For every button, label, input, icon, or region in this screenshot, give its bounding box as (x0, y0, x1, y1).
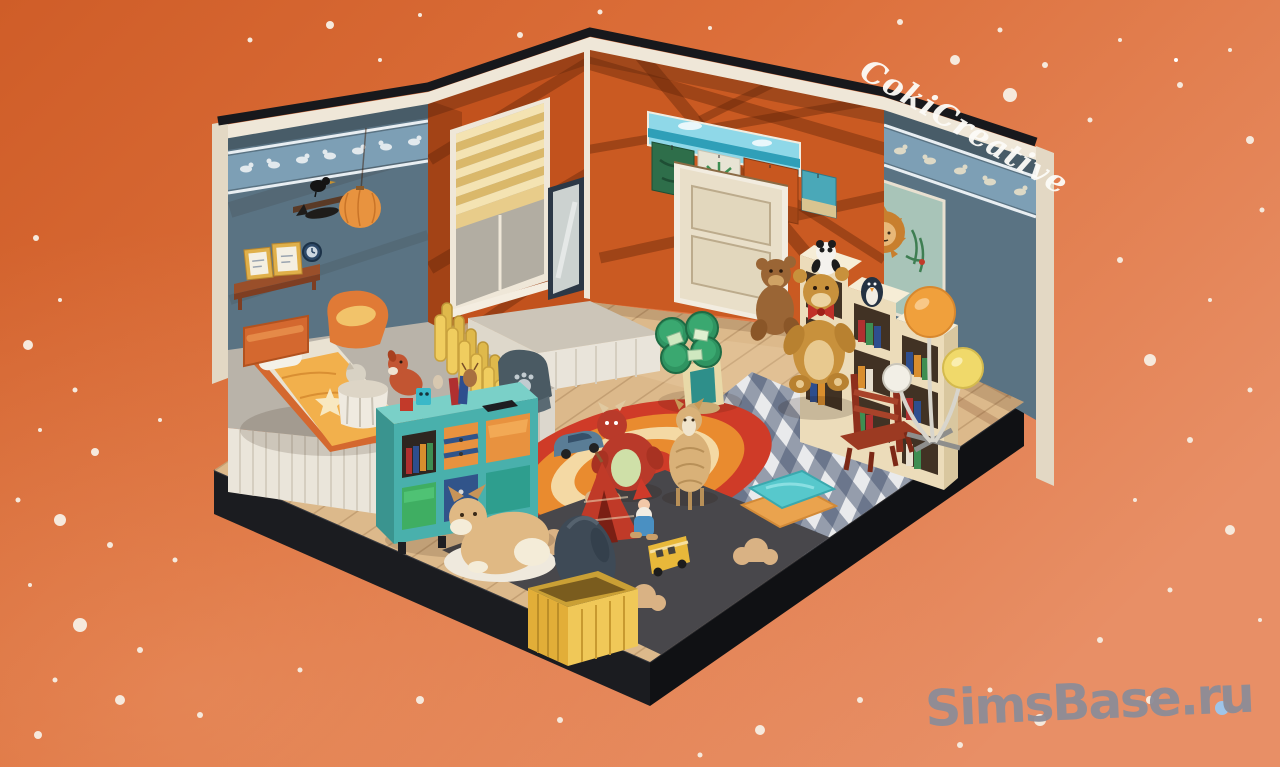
robot-toy (416, 388, 431, 405)
screenshot-root: CokiCreative SimsBase.ru (0, 0, 1280, 767)
room-diorama-scene (0, 0, 1280, 767)
wall-clock (303, 243, 321, 261)
window (444, 97, 556, 320)
wall-mirror (548, 177, 584, 300)
penguin-toy (861, 277, 883, 307)
kids-armchair (327, 291, 388, 349)
